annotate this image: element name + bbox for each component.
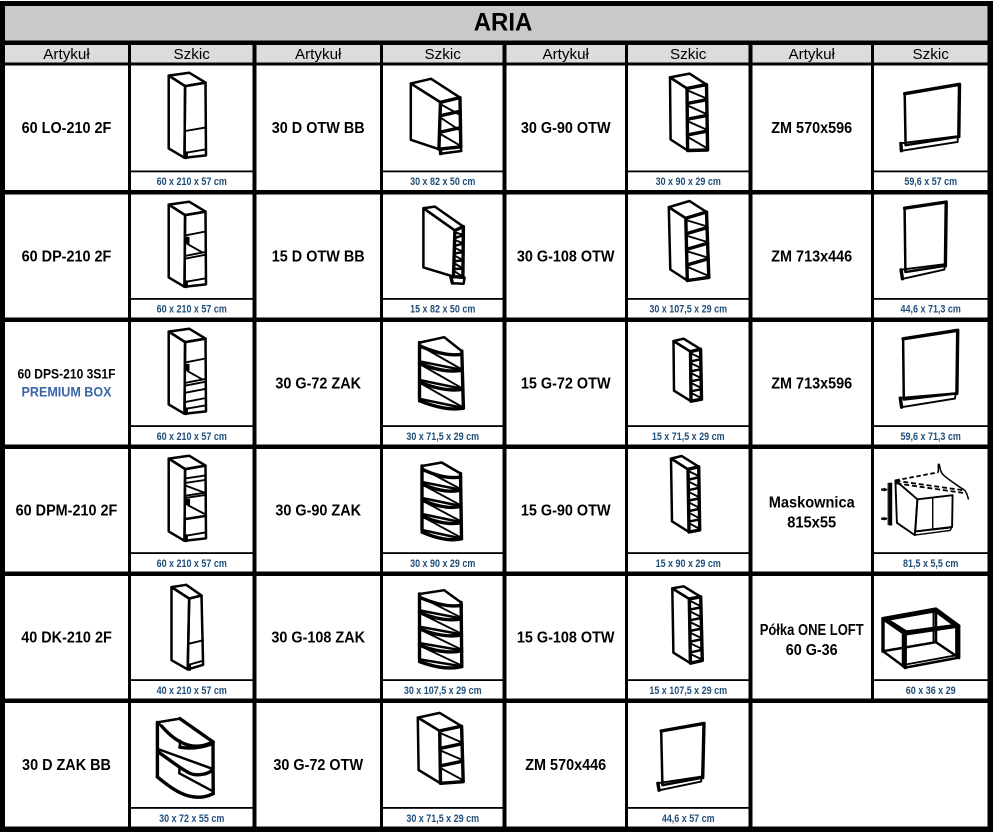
svg-text:Artykuł: Artykuł [43, 46, 90, 63]
svg-text:30 G-108 ZAK: 30 G-108 ZAK [271, 630, 365, 647]
svg-text:ZM 570x446: ZM 570x446 [525, 757, 606, 774]
svg-text:60 DPM-210 2F: 60 DPM-210 2F [16, 503, 118, 520]
svg-text:15 x 107,5 x 29 cm: 15 x 107,5 x 29 cm [649, 685, 727, 697]
svg-text:30 G-90 OTW: 30 G-90 OTW [521, 120, 611, 137]
svg-text:30 x 82 x 50 cm: 30 x 82 x 50 cm [410, 176, 475, 188]
svg-text:60 x 36 x 29: 60 x 36 x 29 [906, 685, 956, 697]
svg-text:15 G-72 OTW: 15 G-72 OTW [521, 376, 611, 393]
svg-text:44,6 x 71,3 cm: 44,6 x 71,3 cm [901, 304, 961, 316]
svg-text:60 x 210 x 57 cm: 60 x 210 x 57 cm [157, 558, 227, 570]
svg-text:15 D OTW BB: 15 D OTW BB [272, 248, 365, 265]
svg-text:15 G-108 OTW: 15 G-108 OTW [517, 630, 615, 647]
svg-text:15 x 90 x 29 cm: 15 x 90 x 29 cm [656, 558, 721, 570]
svg-text:30 x 90 x 29 cm: 30 x 90 x 29 cm [656, 176, 721, 188]
svg-text:Szkic: Szkic [913, 46, 950, 63]
svg-text:60 x 210 x 57 cm: 60 x 210 x 57 cm [157, 431, 227, 443]
svg-text:815x55: 815x55 [787, 515, 836, 532]
svg-text:59,6 x 57 cm: 59,6 x 57 cm [904, 176, 957, 188]
svg-text:30 D ZAK BB: 30 D ZAK BB [22, 757, 111, 774]
svg-text:PREMIUM BOX: PREMIUM BOX [22, 384, 113, 400]
svg-text:Szkic: Szkic [670, 46, 707, 63]
svg-text:60 x 210 x 57 cm: 60 x 210 x 57 cm [157, 304, 227, 316]
svg-text:30 x 107,5 x 29 cm: 30 x 107,5 x 29 cm [649, 304, 727, 316]
svg-text:Artykuł: Artykuł [295, 46, 342, 63]
svg-text:44,6 x 57 cm: 44,6 x 57 cm [662, 813, 715, 825]
svg-text:60 G-36: 60 G-36 [786, 642, 838, 659]
svg-text:Półka ONE LOFT: Półka ONE LOFT [760, 622, 864, 639]
svg-text:15 x 71,5 x 29 cm: 15 x 71,5 x 29 cm [652, 431, 725, 443]
svg-text:30 x 71,5 x 29 cm: 30 x 71,5 x 29 cm [406, 813, 479, 825]
svg-text:Maskownica: Maskownica [769, 495, 855, 512]
svg-text:30 G-72 ZAK: 30 G-72 ZAK [275, 376, 361, 393]
svg-text:30 D OTW BB: 30 D OTW BB [272, 120, 365, 137]
svg-text:15 x 82 x 50 cm: 15 x 82 x 50 cm [410, 304, 475, 316]
svg-text:60 x 210 x 57 cm: 60 x 210 x 57 cm [157, 176, 227, 188]
svg-text:30 x 71,5 x 29 cm: 30 x 71,5 x 29 cm [406, 431, 479, 443]
svg-text:30 G-108 OTW: 30 G-108 OTW [517, 248, 615, 265]
svg-text:30 G-90 ZAK: 30 G-90 ZAK [275, 503, 361, 520]
svg-text:Szkic: Szkic [174, 46, 211, 63]
svg-text:60 DPS-210 3S1F: 60 DPS-210 3S1F [18, 366, 116, 382]
svg-text:40 x 210 x 57 cm: 40 x 210 x 57 cm [157, 685, 227, 697]
svg-text:15 G-90 OTW: 15 G-90 OTW [521, 503, 611, 520]
svg-text:30 G-72 OTW: 30 G-72 OTW [273, 757, 363, 774]
svg-text:60 LO-210 2F: 60 LO-210 2F [22, 120, 112, 137]
svg-text:Szkic: Szkic [425, 46, 462, 63]
svg-text:ARIA: ARIA [474, 9, 533, 37]
svg-text:Artykuł: Artykuł [788, 46, 835, 63]
svg-text:30 x 72 x 55 cm: 30 x 72 x 55 cm [159, 813, 224, 825]
svg-text:ZM 713x446: ZM 713x446 [771, 248, 852, 265]
svg-text:40 DK-210 2F: 40 DK-210 2F [21, 630, 112, 647]
svg-text:60 DP-210 2F: 60 DP-210 2F [22, 248, 112, 265]
svg-text:81,5 x 5,5 cm: 81,5 x 5,5 cm [903, 558, 958, 570]
svg-text:30 x 107,5 x 29 cm: 30 x 107,5 x 29 cm [404, 685, 482, 697]
svg-text:Artykuł: Artykuł [542, 46, 589, 63]
svg-text:ZM 570x596: ZM 570x596 [771, 120, 852, 137]
svg-text:59,6 x 71,3 cm: 59,6 x 71,3 cm [901, 431, 961, 443]
svg-text:30 x 90 x 29 cm: 30 x 90 x 29 cm [410, 558, 475, 570]
svg-text:ZM 713x596: ZM 713x596 [771, 376, 852, 393]
